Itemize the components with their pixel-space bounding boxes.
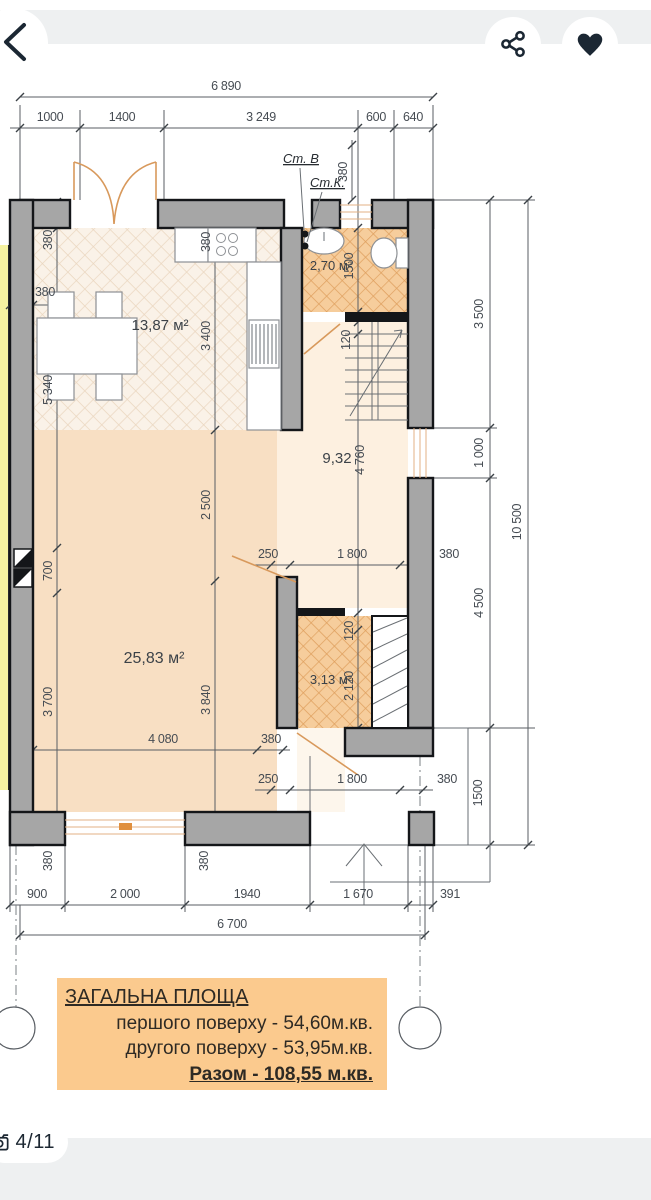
dim-label: 640 — [403, 110, 423, 124]
dim-label: 3 840 — [199, 685, 213, 715]
dim-label: 1 670 — [343, 887, 373, 901]
floor-plan-image[interactable]: Ст. В Ст.К. 6 890 1000 1400 3 249 600 64… — [0, 0, 651, 1115]
dim-label: 900 — [27, 887, 47, 901]
dim-label: 3 400 — [199, 321, 213, 351]
room-label-living: 25,83 м² — [124, 650, 185, 667]
dim-label: 10 500 — [510, 503, 524, 540]
dim-label: 380 — [199, 232, 213, 252]
dim-label: 5 340 — [41, 375, 55, 405]
camera-icon — [0, 1133, 11, 1152]
dim-label: 250 — [258, 547, 278, 561]
dim-label: 1 800 — [337, 547, 367, 561]
room-label-kitchen: 13,87 м² — [131, 317, 188, 334]
share-nodes-icon — [499, 30, 527, 61]
summary-total: Разом - 108,55 м.кв. — [65, 1064, 373, 1086]
dim-label: 380 — [336, 162, 350, 182]
dim-label: 120 — [339, 330, 353, 350]
dim-label: 4 760 — [353, 445, 367, 475]
dim-label: 380 — [437, 772, 457, 786]
dim-label: 6 700 — [217, 917, 247, 931]
dim-label: 600 — [366, 110, 386, 124]
dim-label: 3 249 — [246, 110, 276, 124]
dim-label: 250 — [258, 772, 278, 786]
dim-label: 3 500 — [472, 299, 486, 329]
favorite-button[interactable] — [562, 17, 618, 73]
dim-label: 2 000 — [110, 887, 140, 901]
total-area-summary: ЗАГАЛЬНА ПЛОЩА першого поверху - 54,60м.… — [57, 978, 387, 1090]
listing-photo-viewer: Ст. В Ст.К. 6 890 1000 1400 3 249 600 64… — [0, 0, 651, 1200]
dim-label: 4 500 — [472, 588, 486, 618]
dim-label: 120 — [342, 621, 356, 641]
dim-label: 1 800 — [337, 772, 367, 786]
wardrobe — [372, 616, 408, 728]
chevron-left-icon — [0, 19, 32, 68]
dim-label: 2 500 — [199, 490, 213, 520]
room-label-storage: 3,13 м² — [310, 672, 353, 687]
dim-label: 380 — [35, 285, 55, 299]
dim-label: 4 080 — [148, 732, 178, 746]
dim-label: 1400 — [109, 110, 136, 124]
bottom-band — [0, 1138, 651, 1200]
share-button[interactable] — [485, 17, 541, 73]
dim-label: 380 — [261, 732, 281, 746]
photo-counter-pill[interactable]: 4/11 — [0, 1121, 68, 1163]
dim-label: 1500 — [471, 779, 485, 806]
dim-label: 1 000 — [472, 438, 486, 468]
dim-label: 391 — [440, 887, 460, 901]
summary-second-floor: другого поверху - 53,95м.кв. — [65, 1038, 373, 1060]
summary-title: ЗАГАЛЬНА ПЛОЩА — [65, 986, 373, 1009]
status-band — [0, 10, 651, 44]
dim-label: 380 — [197, 851, 211, 871]
photo-counter-label: 4/11 — [16, 1131, 55, 1154]
dim-label: 1000 — [37, 110, 64, 124]
summary-first-floor: першого поверху - 54,60м.кв. — [65, 1013, 373, 1035]
dim-label: 3 700 — [41, 687, 55, 717]
dim-label: 700 — [41, 561, 55, 581]
dim-label: 6 890 — [211, 79, 241, 93]
dim-label: 380 — [41, 230, 55, 250]
room-label-hall: 9,32 — [322, 450, 351, 467]
heart-icon — [575, 30, 605, 61]
dim-label: 1940 — [234, 887, 261, 901]
dim-label: 380 — [439, 547, 459, 561]
dim-label: 380 — [41, 851, 55, 871]
riser-label-water: Ст. В — [283, 151, 319, 166]
room-label-bathroom: 2,70 м² — [310, 258, 353, 273]
